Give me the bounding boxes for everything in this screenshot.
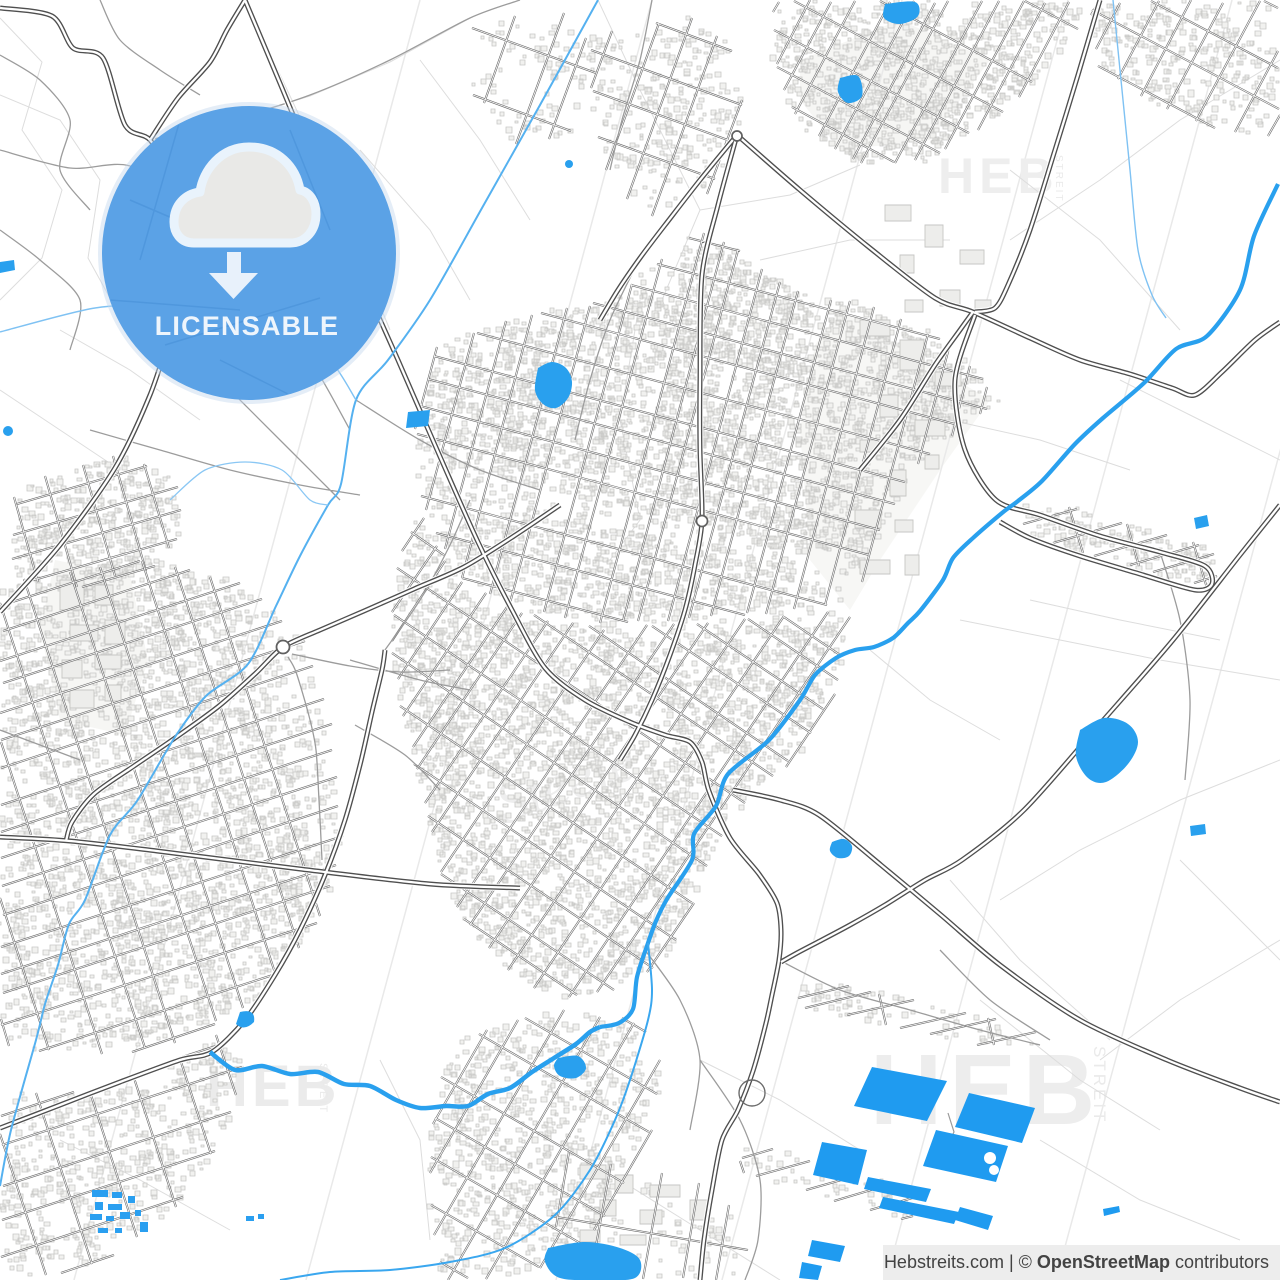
svg-text:LICENSABLE: LICENSABLE [155,311,340,341]
svg-text:STREIT: STREIT [1090,1046,1109,1124]
svg-text:Hebstreits.com | © OpenStreetM: Hebstreits.com | © OpenStreetMap contrib… [884,1252,1269,1272]
